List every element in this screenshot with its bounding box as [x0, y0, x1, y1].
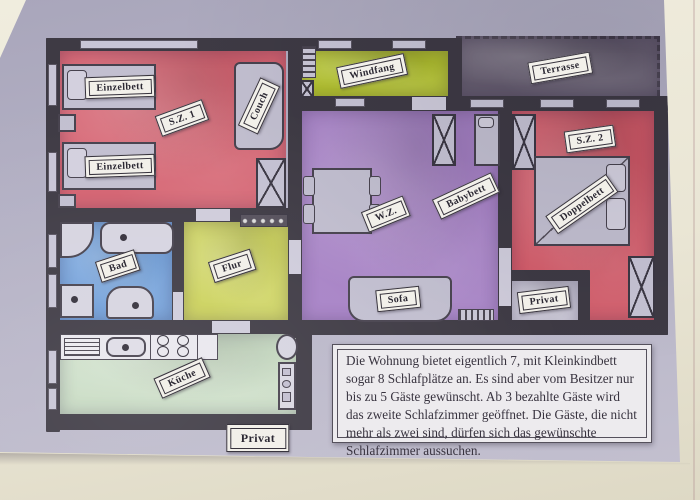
pillow	[478, 117, 494, 128]
window	[335, 98, 365, 107]
window	[48, 274, 57, 308]
stairs-icon	[302, 46, 316, 78]
window	[48, 350, 57, 384]
chair	[303, 204, 315, 224]
boiler	[276, 334, 298, 360]
chair	[369, 176, 381, 196]
threshold-hatch	[458, 309, 494, 321]
drain-dot	[132, 302, 139, 309]
drain-dot	[71, 296, 78, 303]
wall-bad-kueche	[46, 320, 302, 334]
dish-rack	[64, 338, 100, 356]
wall-privat-nook-top	[498, 270, 590, 281]
wall-outer-right	[654, 105, 668, 335]
door-sz1	[196, 209, 230, 221]
wardrobe-icon	[628, 256, 655, 318]
door-bad-flur	[173, 292, 183, 320]
door-windfang-wz	[412, 97, 446, 110]
window	[392, 40, 426, 49]
nightstand	[58, 194, 76, 208]
window	[48, 234, 57, 268]
nightstand	[58, 114, 76, 132]
burner-icon	[176, 335, 190, 359]
window	[80, 40, 198, 49]
label-einzelbett-1: Einzelbett	[84, 75, 155, 99]
wardrobe-icon	[300, 80, 314, 98]
photo-background-line	[693, 0, 695, 500]
label-sofa: Sofa	[375, 286, 421, 312]
wall-bottom-main	[288, 320, 668, 335]
shelf-item	[282, 368, 291, 376]
window	[48, 64, 57, 106]
toilet	[106, 286, 154, 319]
door-flur-wz	[289, 240, 301, 274]
label-einzelbett-2: Einzelbett	[84, 154, 155, 178]
wardrobe-icon	[432, 114, 456, 166]
note-box: Die Wohnung bietet eigentlich 7, mit Kle…	[332, 344, 652, 443]
floorplan-paper: Einzelbett Einzelbett S.Z. 1 Couch Windf…	[0, 0, 700, 500]
chair	[303, 176, 315, 196]
drain-dot	[120, 234, 127, 241]
photo-of-floorplan: Einzelbett Einzelbett S.Z. 1 Couch Windf…	[0, 0, 700, 500]
wall-privat-nook-right	[578, 270, 590, 332]
wardrobe-icon	[256, 158, 286, 208]
wall-sz1-right	[288, 38, 302, 222]
shelf-item	[282, 380, 291, 388]
shelf-item	[282, 392, 291, 402]
door-wz-sz2	[499, 248, 511, 306]
pillow	[606, 198, 626, 230]
bathtub	[100, 222, 174, 254]
window	[48, 152, 57, 192]
note-text: Die Wohnung bietet eigentlich 7, mit Kle…	[337, 349, 647, 438]
window	[470, 99, 504, 108]
wardrobe-icon	[512, 114, 536, 170]
window	[606, 99, 640, 108]
burner-icon	[156, 335, 170, 359]
door-flur-kueche	[212, 321, 250, 333]
window	[540, 99, 574, 108]
threshold-dots	[240, 214, 288, 227]
drain-dot	[122, 344, 129, 351]
dining-table	[312, 168, 372, 234]
label-privat-entrance: Privat	[226, 424, 289, 452]
window	[318, 40, 352, 49]
window	[48, 388, 57, 410]
